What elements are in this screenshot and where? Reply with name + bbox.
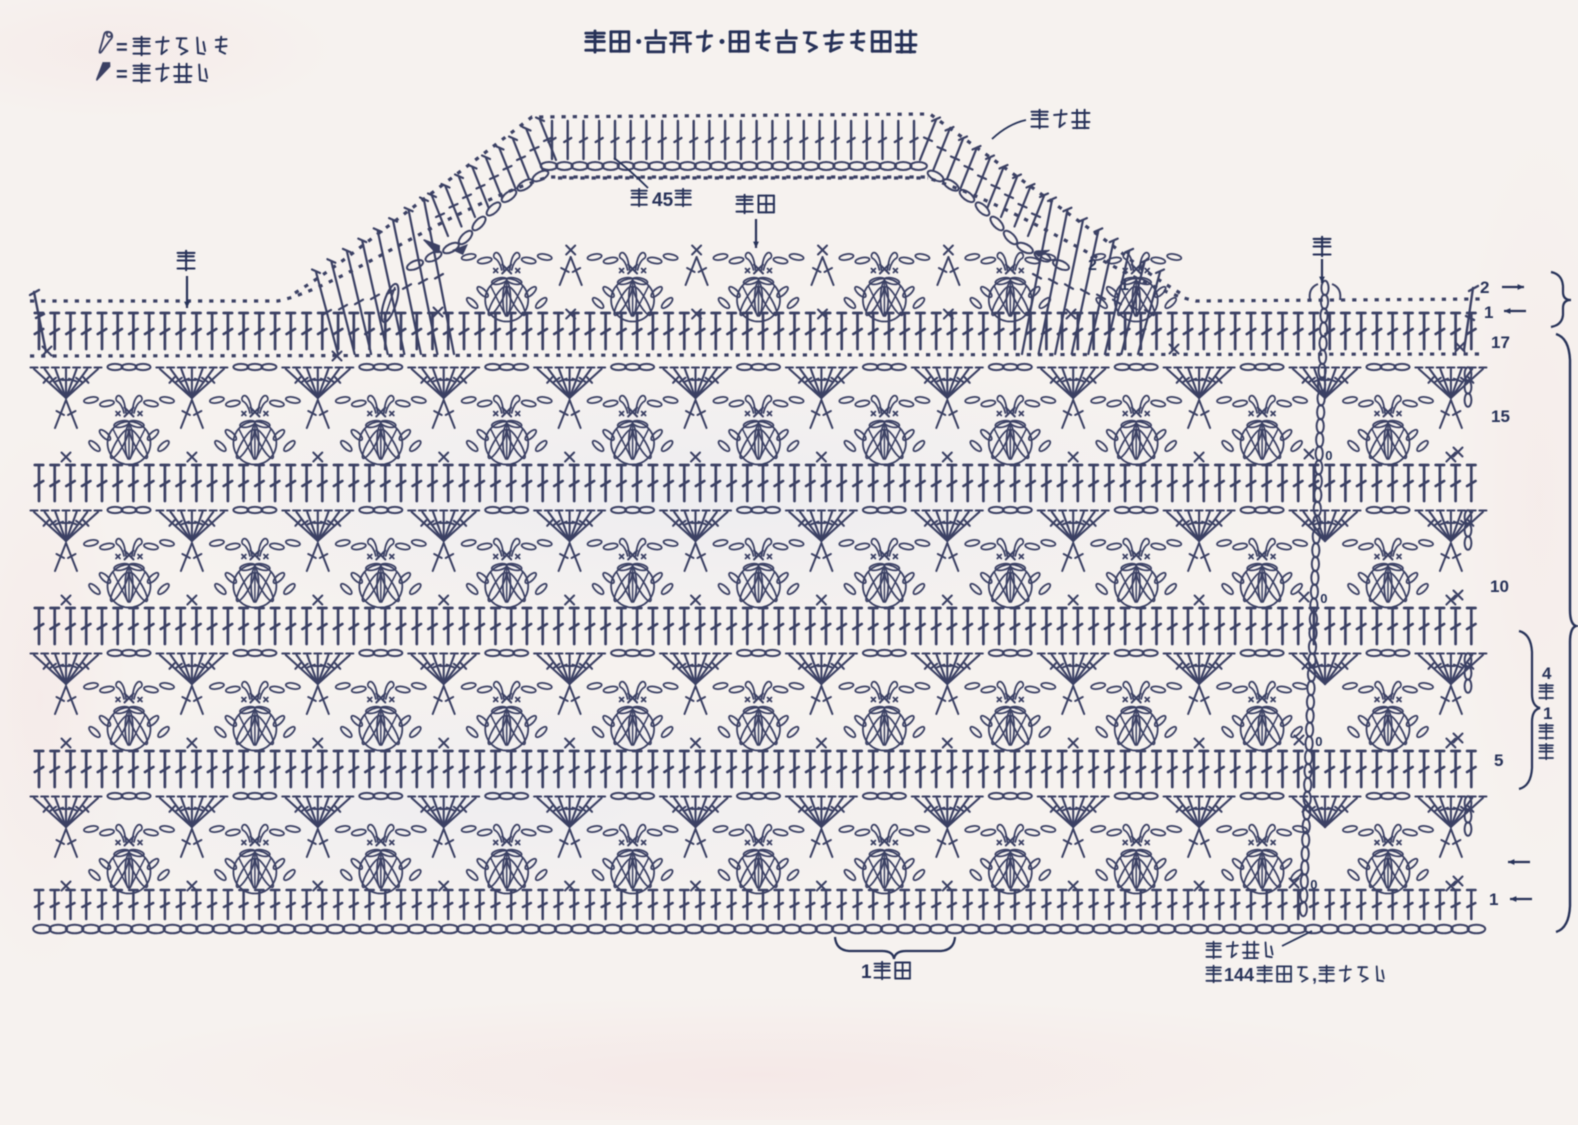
svg-text:17: 17: [1491, 333, 1510, 352]
svg-text:5: 5: [1494, 751, 1503, 770]
svg-text:0: 0: [1320, 591, 1327, 606]
svg-text:0: 0: [1310, 877, 1317, 892]
svg-text:=: =: [116, 64, 128, 86]
svg-text:1: 1: [1543, 704, 1552, 723]
svg-text:10: 10: [1490, 577, 1509, 596]
svg-text:1: 1: [1489, 890, 1498, 909]
svg-text:2: 2: [1480, 278, 1489, 297]
svg-text:0: 0: [1325, 448, 1332, 463]
svg-text:144: 144: [1224, 965, 1254, 985]
svg-text:15: 15: [1491, 407, 1510, 426]
svg-text:,: ,: [1312, 965, 1317, 985]
svg-text:1: 1: [1484, 303, 1493, 322]
svg-text:1: 1: [861, 962, 872, 983]
svg-text:45: 45: [652, 190, 674, 211]
svg-text:=: =: [116, 37, 128, 59]
svg-text:0: 0: [1315, 734, 1322, 749]
svg-text:4: 4: [1542, 664, 1552, 683]
